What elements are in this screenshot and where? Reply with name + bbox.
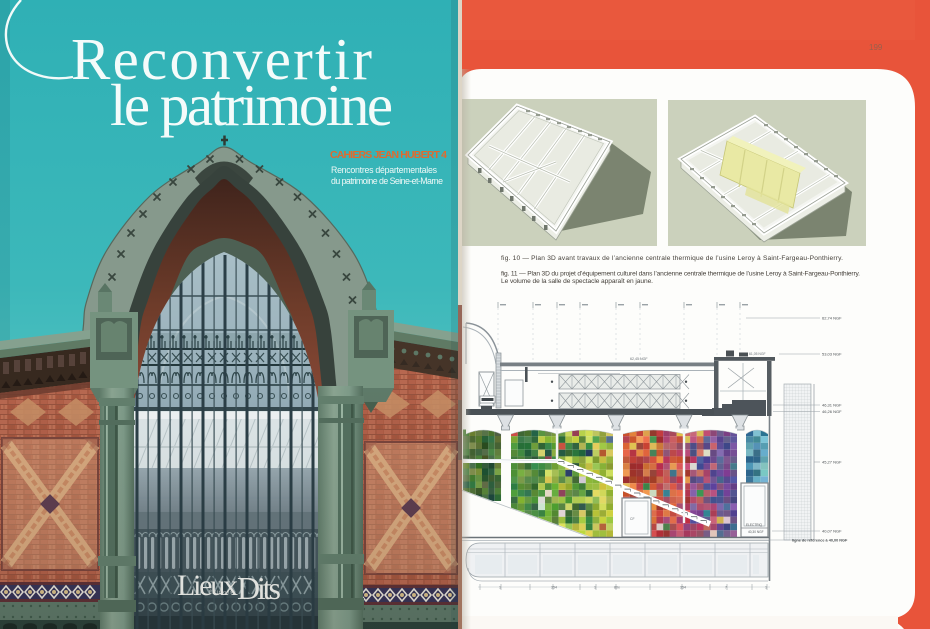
svg-text:46,26 NGF: 46,26 NGF xyxy=(822,409,842,414)
svg-text:62,74 NGF: 62,74 NGF xyxy=(822,316,842,321)
svg-text:354: 354 xyxy=(680,586,686,590)
svg-text:45,27 NGF: 45,27 NGF xyxy=(822,460,842,465)
svg-text:Rencontres départementales: Rencontres départementales xyxy=(331,165,438,175)
svg-text:le patrimoine: le patrimoine xyxy=(110,72,393,138)
svg-text:fig. 10 — Plan 3D avant travau: fig. 10 — Plan 3D avant travaux de l’anc… xyxy=(501,255,843,262)
svg-text:80x: 80x xyxy=(614,586,620,590)
svg-text:ligne de référence à 40,00 NGF: ligne de référence à 40,00 NGF xyxy=(792,539,848,543)
svg-text:53,03 NGF: 53,03 NGF xyxy=(822,352,842,357)
svg-text:1: 1 xyxy=(765,586,767,590)
svg-text:40,30 NGF: 40,30 NGF xyxy=(748,530,764,534)
svg-text:7: 7 xyxy=(725,586,727,590)
svg-text:Le volume de la salle de spect: Le volume de la salle de spectacle appar… xyxy=(501,278,653,285)
svg-text:61,05 NGF: 61,05 NGF xyxy=(749,352,766,356)
svg-text:CF: CF xyxy=(630,517,635,521)
svg-text:354: 354 xyxy=(551,586,557,590)
svg-text:CAHIERS JEAN HUBERT 4: CAHIERS JEAN HUBERT 4 xyxy=(330,149,447,161)
svg-text:ELECTRIQ: ELECTRIQ xyxy=(746,523,762,527)
svg-text:1: 1 xyxy=(499,586,501,590)
svg-text:46,31 NGF: 46,31 NGF xyxy=(822,403,842,408)
svg-text:62,45 NGF: 62,45 NGF xyxy=(630,357,648,361)
svg-text:199: 199 xyxy=(869,43,883,52)
svg-text:du patrimoine de Seine-et-Marn: du patrimoine de Seine-et-Marne xyxy=(331,176,443,186)
svg-text:40,07 NGF: 40,07 NGF xyxy=(822,529,842,534)
svg-text:1: 1 xyxy=(594,586,596,590)
svg-text:fig. 11 — Plan 3D du projet d’: fig. 11 — Plan 3D du projet d’équipement… xyxy=(501,271,860,278)
